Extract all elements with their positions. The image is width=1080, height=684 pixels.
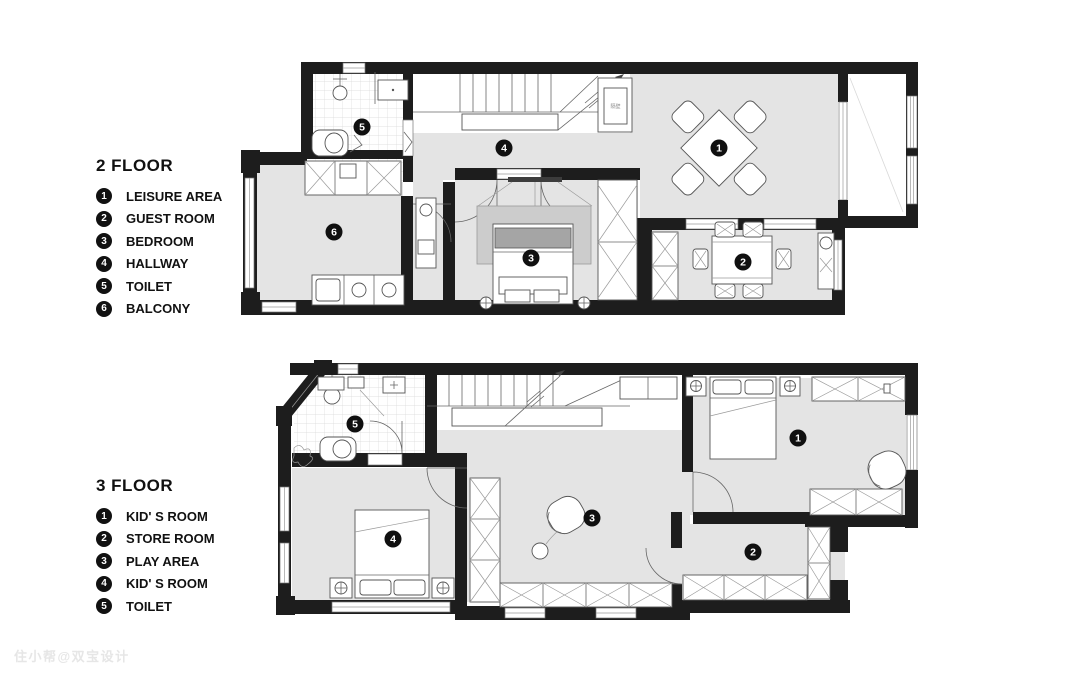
legend-3f: 3 FLOOR 1KID' S ROOM 2STORE ROOM 3PLAY A… [96, 476, 215, 618]
legend-badge: 5 [96, 598, 112, 614]
room-marker-number: 3 [589, 513, 595, 525]
legend-item: 5TOILET [96, 275, 222, 298]
floorplan-page: 2 FLOOR 1LEISURE AREA 2GUEST ROOM 3BEDRO… [0, 0, 1080, 684]
room-marker-number: 2 [750, 547, 756, 559]
legend-label: KID' S ROOM [126, 576, 208, 591]
room-marker-number: 2 [740, 257, 746, 269]
legend-badge: 5 [96, 278, 112, 294]
legend-item: 4HALLWAY [96, 253, 222, 276]
legend-label: PLAY AREA [126, 554, 199, 569]
legend-list-3f: 1KID' S ROOM 2STORE ROOM 3PLAY AREA 4KID… [96, 505, 215, 618]
legend-item: 3BEDROOM [96, 230, 222, 253]
legend-badge: 2 [96, 531, 112, 547]
legend-label: GUEST ROOM [126, 211, 215, 226]
room-marker-number: 3 [528, 253, 534, 265]
legend-2f: 2 FLOOR 1LEISURE AREA 2GUEST ROOM 3BEDRO… [96, 156, 222, 320]
floor-plan-3f: 12345 [272, 356, 924, 624]
legend-label: HALLWAY [126, 256, 188, 271]
flue-label: 隔壁 [610, 103, 620, 110]
floor-title-3f: 3 FLOOR [96, 476, 215, 496]
legend-badge: 4 [96, 256, 112, 272]
legend-label: BALCONY [126, 301, 190, 316]
legend-item: 2STORE ROOM [96, 528, 215, 551]
legend-item: 2GUEST ROOM [96, 208, 222, 231]
legend-list-2f: 1LEISURE AREA 2GUEST ROOM 3BEDROOM 4HALL… [96, 185, 222, 320]
room-marker-number: 5 [352, 419, 358, 431]
legend-badge: 6 [96, 301, 112, 317]
legend-label: TOILET [126, 599, 172, 614]
floor-title-2f: 2 FLOOR [96, 156, 222, 176]
legend-label: BEDROOM [126, 234, 194, 249]
legend-label: STORE ROOM [126, 531, 215, 546]
legend-badge: 2 [96, 211, 112, 227]
legend-item: 1LEISURE AREA [96, 185, 222, 208]
legend-badge: 4 [96, 576, 112, 592]
legend-badge: 3 [96, 553, 112, 569]
watermark: 住小帮@双宝设计 [14, 646, 130, 665]
legend-label: KID' S ROOM [126, 509, 208, 524]
legend-badge: 3 [96, 233, 112, 249]
legend-item: 4KID' S ROOM [96, 573, 215, 596]
legend-badge: 1 [96, 508, 112, 524]
legend-item: 5TOILET [96, 595, 215, 618]
room-marker-number: 6 [331, 227, 337, 239]
floor-plan-2f: 隔壁 [240, 56, 924, 324]
room-marker-number: 5 [359, 122, 365, 134]
legend-label: LEISURE AREA [126, 189, 222, 204]
legend-item: 6BALCONY [96, 298, 222, 321]
room-marker-number: 4 [501, 143, 507, 155]
legend-badge: 1 [96, 188, 112, 204]
legend-label: TOILET [126, 279, 172, 294]
legend-item: 3PLAY AREA [96, 550, 215, 573]
room-marker-number: 1 [716, 143, 722, 155]
legend-item: 1KID' S ROOM [96, 505, 215, 528]
room-marker-number: 1 [795, 433, 801, 445]
room-marker-number: 4 [390, 534, 396, 546]
